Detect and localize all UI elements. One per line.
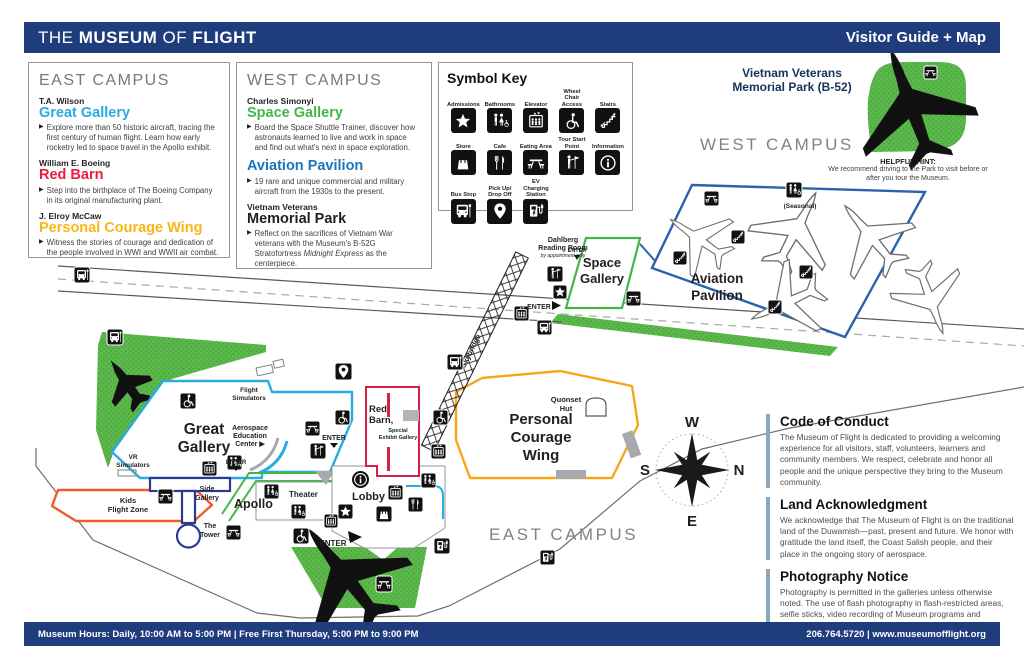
symbol-key-title: Symbol Key xyxy=(447,70,624,86)
red-barn-bar xyxy=(387,393,390,417)
key-label: EV Charging Station xyxy=(520,179,552,198)
enter-marker: ENTER xyxy=(226,460,247,466)
memorial-park-title-line: Memorial Park (B-52) xyxy=(704,80,880,94)
footer-bar: Museum Hours: Daily, 10:00 AM to 5:00 PM… xyxy=(24,622,1000,646)
key-cell: EV Charging Station xyxy=(520,179,552,223)
ev-charging-icon xyxy=(434,538,450,554)
stairs-icon xyxy=(673,251,687,265)
exhibit-name: Memorial Park xyxy=(247,212,421,227)
key-label: Store xyxy=(456,137,471,150)
key-label: Eating Area xyxy=(520,137,552,150)
red-barn-dock xyxy=(403,410,419,421)
panel-title: WEST CAMPUS xyxy=(247,72,421,90)
tour-start-icon xyxy=(310,443,326,459)
helpful-hint-title: HELPFUL HINT: xyxy=(822,157,994,166)
key-cell: Cafe xyxy=(484,137,516,175)
great-gallery-label: Gallery xyxy=(178,439,231,456)
cafe-icon xyxy=(487,150,512,175)
museum-hours: Museum Hours: Daily, 10:00 AM to 5:00 PM… xyxy=(38,629,418,640)
key-cell: Bus Stop xyxy=(447,179,480,223)
side-gallery-label: Side xyxy=(200,486,215,493)
aerospace-education-label: Aerospace xyxy=(232,425,268,432)
aircraft-outline xyxy=(884,253,977,346)
eating-area-icon xyxy=(376,576,392,592)
space-gallery-connector xyxy=(640,244,656,262)
enter-marker: ENTER xyxy=(322,435,346,442)
bathrooms-icon xyxy=(291,504,306,519)
cafe-icon xyxy=(408,497,423,512)
bus-stop-icon xyxy=(451,199,476,224)
bullet-arrow-icon: ▶ xyxy=(39,124,44,153)
section-title: Land Acknowledgment xyxy=(780,497,1014,512)
personal-courage-wing-label: Courage xyxy=(511,429,572,446)
exhibit-name: Space Gallery xyxy=(247,106,421,121)
bus-stop-icon xyxy=(107,329,123,345)
bullet-arrow-icon: ▶ xyxy=(39,187,44,206)
elevator-icon xyxy=(431,444,446,459)
key-cell: Wheel Chair Access xyxy=(556,89,588,133)
west-campus-panel: WEST CAMPUS Charles Simonyi Space Galler… xyxy=(236,62,432,269)
key-cell: Store xyxy=(447,137,480,175)
wheelchair-icon xyxy=(293,528,309,544)
great-gallery-label: Great xyxy=(184,421,225,438)
stairs-icon xyxy=(595,108,620,133)
exhibit-name: Aviation Pavilion xyxy=(247,159,421,174)
aerospace-education-label: Center ▶ xyxy=(235,441,265,448)
exhibit-item: Charles Simonyi Space Gallery ▶ Board th… xyxy=(247,96,421,153)
elevator-icon xyxy=(388,485,403,500)
flight-simulators-label: Simulators xyxy=(232,395,266,402)
wheelchair-icon xyxy=(433,410,448,425)
exhibit-name: Red Barn xyxy=(39,168,219,183)
tower-label: The xyxy=(204,523,217,530)
exhibit-description: 19 rare and unique commercial and milita… xyxy=(255,177,421,197)
dahlberg-label: by appointment only xyxy=(541,253,586,259)
compass-s: S xyxy=(640,462,650,479)
dahlberg-label: Reading Room xyxy=(538,245,587,252)
key-label: Bus Stop xyxy=(451,186,476,199)
compass-w: W xyxy=(685,414,700,431)
key-label: Bathrooms xyxy=(485,95,516,108)
stairs-icon xyxy=(799,265,813,279)
info-section: Code of Conduct The Museum of Flight is … xyxy=(766,414,1014,488)
key-cell: Tour Start Point xyxy=(556,137,588,175)
quonset-hut-outline xyxy=(586,398,606,416)
seasonal-label: (Seasonal) xyxy=(784,203,817,210)
bus-stop-icon xyxy=(74,267,90,283)
eating-area-icon xyxy=(523,150,548,175)
red-barn-label: Red xyxy=(369,404,387,415)
key-cell: Elevator xyxy=(520,89,552,133)
museum-brand-title: THE MUSEUM OF FLIGHT xyxy=(38,28,257,48)
exhibit-description: Explore more than 50 historic aircraft, … xyxy=(47,123,219,153)
store-icon xyxy=(376,506,392,522)
exhibit-description: Reflect on the sacrifices of Vietnam War… xyxy=(255,229,421,270)
brand-the: THE xyxy=(38,28,74,47)
theater-label: Theater xyxy=(289,490,318,499)
wheelchair-icon xyxy=(335,410,350,425)
key-cell-empty xyxy=(592,179,624,223)
space-gallery-label: Gallery xyxy=(580,271,625,286)
info-section: Land Acknowledgment We acknowledge that … xyxy=(766,497,1014,560)
exhibit-item: T.A. Wilson Great Gallery ▶ Explore more… xyxy=(39,96,219,153)
eating-area-icon xyxy=(158,489,173,504)
brand-of: OF xyxy=(163,28,188,47)
aviation-pavilion-label: Pavilion xyxy=(691,288,743,303)
compass-e: E xyxy=(687,513,697,530)
helpful-hint: HELPFUL HINT: We recommend driving to th… xyxy=(822,157,994,184)
aerospace-education-label: Education xyxy=(233,433,267,440)
exhibit-item: Vietnam Veterans Memorial Park ▶ Reflect… xyxy=(247,202,421,270)
brand-flight: FLIGHT xyxy=(192,28,256,47)
key-cell: Eating Area xyxy=(520,137,552,175)
key-cell-empty xyxy=(556,179,588,223)
wheelchair-icon xyxy=(559,108,584,133)
special-exhibit-label: Exhibit Gallery xyxy=(379,435,418,441)
information-icon xyxy=(352,471,370,489)
memorial-park-title-line: Vietnam Veterans xyxy=(704,66,880,80)
visitor-guide-title: Visitor Guide + Map xyxy=(846,29,986,46)
bathrooms-icon xyxy=(421,473,436,488)
eating-area-icon xyxy=(226,525,241,540)
stairs-icon xyxy=(731,230,745,244)
east-campus-map-label: EAST CAMPUS xyxy=(489,525,638,544)
space-gallery-label: Space xyxy=(583,255,621,270)
exhibit-description: Witness the stories of courage and dedic… xyxy=(47,238,219,258)
vr-simulators-label: VR xyxy=(128,454,137,461)
eating-area-icon xyxy=(626,291,641,306)
bullet-arrow-icon: ▶ xyxy=(39,239,44,258)
bus-stop-icon xyxy=(537,320,552,335)
section-title: Code of Conduct xyxy=(780,414,1014,429)
compass-rose: W N E S xyxy=(640,414,744,530)
flight-simulators-shape xyxy=(255,359,285,376)
ev-charging-icon xyxy=(523,199,548,224)
elevator-icon xyxy=(202,461,217,476)
flight-simulators-label: Flight xyxy=(240,387,259,394)
enter-marker: ENTER xyxy=(319,539,346,548)
exhibit-description: Board the Space Shuttle Trainer, discove… xyxy=(255,123,421,153)
eating-area-icon xyxy=(704,191,719,206)
west-campus-map-label: WEST CAMPUS xyxy=(700,135,854,154)
visitor-guide-page: Skybridge xyxy=(0,0,1024,658)
symbol-key-panel: Symbol Key Admissions Bathrooms Elevator… xyxy=(438,62,633,211)
exhibit-item: Aviation Pavilion ▶ 19 rare and unique c… xyxy=(247,159,421,196)
info-column: Code of Conduct The Museum of Flight is … xyxy=(766,414,1014,640)
bullet-arrow-icon: ▶ xyxy=(247,230,252,270)
exhibit-description: Step into the birthplace of The Boeing C… xyxy=(47,186,219,206)
enter-arrow-icon xyxy=(552,301,561,310)
section-body: We acknowledge that The Museum of Flight… xyxy=(780,515,1014,560)
apollo-label: Apollo xyxy=(234,497,273,511)
ev-charging-icon xyxy=(540,550,555,565)
key-label: Elevator xyxy=(524,95,547,108)
bathrooms-icon xyxy=(786,182,802,198)
exhibit-name: Personal Courage Wing xyxy=(39,221,219,236)
key-label: Tour Start Point xyxy=(556,137,588,150)
helpful-hint-body: We recommend driving to the Park to visi… xyxy=(822,166,994,184)
vr-simulators-label: Simulators xyxy=(116,462,150,469)
section-body: The Museum of Flight is dedicated to pro… xyxy=(780,432,1014,488)
kids-flight-zone-label: Kids xyxy=(120,496,136,505)
enter-marker: ENTER xyxy=(527,304,551,311)
admissions-icon xyxy=(338,504,353,519)
admissions-icon xyxy=(553,285,567,299)
key-label: Admissions xyxy=(447,95,480,108)
key-cell: Pick Up/ Drop Off xyxy=(484,179,516,223)
store-icon xyxy=(451,150,476,175)
key-label: Wheel Chair Access xyxy=(556,89,588,108)
tower-label: Tower xyxy=(200,532,220,539)
information-icon xyxy=(595,150,620,175)
road-dashed-line xyxy=(58,279,1024,346)
key-label: Cafe xyxy=(494,137,507,150)
pick-up-drop-off-icon xyxy=(335,363,352,380)
elevator-icon xyxy=(523,108,548,133)
bullet-arrow-icon: ▶ xyxy=(247,178,252,197)
key-label: Pick Up/ Drop Off xyxy=(484,186,516,199)
east-campus-panel: EAST CAMPUS T.A. Wilson Great Gallery ▶ … xyxy=(28,62,230,258)
elevator-icon xyxy=(324,514,338,528)
brand-museum: MUSEUM xyxy=(79,28,158,47)
lobby-label: Lobby xyxy=(352,491,386,503)
pick-up-drop-off-icon xyxy=(487,199,512,224)
section-title: Photography Notice xyxy=(780,569,1014,584)
symbol-key-grid: Admissions Bathrooms Elevator Wheel Chai… xyxy=(447,89,624,224)
stairs-icon xyxy=(768,300,782,314)
kids-flight-zone-label: Flight Zone xyxy=(108,505,148,514)
key-cell: Admissions xyxy=(447,89,480,133)
contact-info: 206.764.5720 | www.museumofflight.org xyxy=(806,629,986,640)
wheelchair-icon xyxy=(180,393,196,409)
special-exhibit-label: Special xyxy=(388,428,408,434)
red-barn-bar xyxy=(387,447,390,471)
exhibit-item: William E. Boeing Red Barn ▶ Step into t… xyxy=(39,158,219,205)
eating-area-icon xyxy=(924,66,937,79)
bullet-arrow-icon: ▶ xyxy=(247,124,252,153)
personal-courage-wing-label: Personal xyxy=(509,411,572,428)
header-bar: THE MUSEUM OF FLIGHT Visitor Guide + Map xyxy=(24,22,1000,53)
red-barn-label: Barn, xyxy=(369,415,393,426)
aviation-pavilion-label: Aviation xyxy=(691,271,744,286)
exhibit-item: J. Elroy McCaw Personal Courage Wing ▶ W… xyxy=(39,211,219,258)
key-cell: Stairs xyxy=(592,89,624,133)
compass-n: N xyxy=(734,462,745,479)
personal-courage-wing-label: Wing xyxy=(523,447,560,464)
quonset-hut-label: Quonset xyxy=(551,395,582,404)
admissions-icon xyxy=(451,108,476,133)
key-cell: Bathrooms xyxy=(484,89,516,133)
tour-start-icon xyxy=(547,266,563,282)
exhibit-name: Great Gallery xyxy=(39,106,219,121)
eating-area-icon xyxy=(305,421,320,436)
tour-start-icon xyxy=(559,150,584,175)
dahlberg-label: Dahlberg xyxy=(548,237,578,244)
key-label: Stairs xyxy=(600,95,616,108)
memorial-park-title: Vietnam Veterans Memorial Park (B-52) xyxy=(704,66,880,94)
bus-stop-icon xyxy=(447,354,463,370)
bathrooms-icon xyxy=(487,108,512,133)
side-gallery-label: Gallery xyxy=(195,495,219,502)
panel-title: EAST CAMPUS xyxy=(39,72,219,90)
key-cell: Information xyxy=(592,137,624,175)
key-label: Information xyxy=(592,137,624,150)
